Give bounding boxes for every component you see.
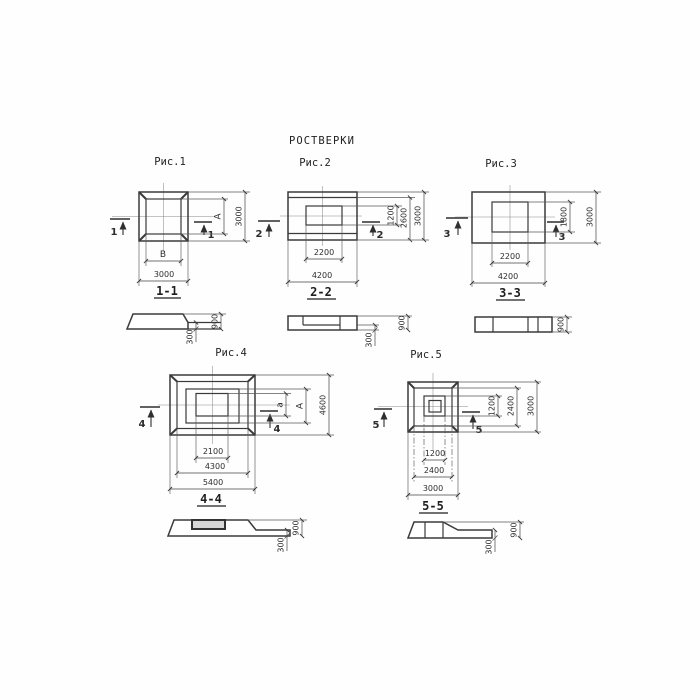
fig5-dim-right-2400: 2400	[507, 396, 516, 416]
figure-3-caption: Рис.3	[485, 158, 517, 170]
cut-mark-3-right: 3	[559, 232, 566, 243]
sec2-dim-300: 300	[365, 332, 374, 347]
fig4-dim-4300: 4300	[205, 462, 225, 471]
fig1-dim-width: 3000	[154, 270, 174, 279]
cut-mark-4-right: 4	[274, 424, 281, 435]
fig1-dim-B: В	[160, 250, 166, 260]
figure-5-caption: Рис.5	[410, 349, 442, 361]
section-4-4-recess	[192, 520, 225, 529]
figure-2-plan	[280, 186, 362, 246]
fig2-dim-3000: 3000	[414, 206, 423, 226]
drawing-canvas: РОСТВЕРКИ Рис.1 1 1 А	[0, 0, 700, 700]
fig2-dim-1200: 1200	[387, 205, 396, 225]
section-view-1-1: 300 900	[127, 314, 226, 345]
fig2-dim-2200: 2200	[314, 248, 334, 257]
fig1-dim-A: А	[214, 213, 224, 220]
fig4-dim-5400: 5400	[203, 478, 223, 487]
sec4-dim-300: 300	[277, 537, 286, 552]
fig2-dim-2600: 2600	[400, 208, 409, 228]
drawing-sheet: РОСТВЕРКИ Рис.1 1 1 А	[0, 0, 700, 700]
fig3-dim-1800: 1800	[560, 207, 569, 227]
section-view-3-3: 900	[475, 317, 572, 332]
fig4-dim-A: А	[296, 402, 306, 409]
cut-mark-2-right: 2	[377, 230, 384, 241]
sec5-dim-900: 900	[510, 522, 519, 537]
cut-mark-1-left: 1	[111, 227, 118, 238]
figure-5-plan	[378, 373, 468, 450]
cut-mark-1-right: 1	[208, 230, 215, 241]
cut-mark-3-left: 3	[444, 229, 451, 240]
figure-4-cut-marks: 4 4	[139, 407, 281, 435]
figure-2-section-label: 2-2	[310, 285, 332, 299]
fig3-dim-4200: 4200	[498, 272, 518, 281]
figure-2: Рис.2 2 2 1200 2600	[256, 157, 429, 299]
sec1-dim-900: 900	[211, 314, 220, 329]
fig4-dim-4600: 4600	[319, 395, 328, 415]
fig1-dim-height: 3000	[235, 206, 244, 226]
figure-4-plan	[158, 366, 290, 444]
fig5-dim-right-1200: 1200	[488, 396, 497, 416]
fig5-dim-bottom-1200: 1200	[425, 449, 445, 458]
figure-5: Рис.5 5 5 1200	[373, 349, 541, 513]
figure-4-caption: Рис.4	[215, 347, 247, 359]
sec5-dim-300: 300	[485, 539, 494, 554]
sec4-dim-900: 900	[292, 520, 301, 535]
cut-mark-4-left: 4	[139, 419, 146, 430]
figure-1-cut-marks: 1 1	[110, 219, 215, 241]
figure-4-section-label: 4-4	[200, 492, 222, 506]
fig5-dim-bottom-2400: 2400	[424, 466, 444, 475]
section-5-5-shape	[408, 522, 492, 538]
section-view-5-5: 900 300	[408, 522, 524, 555]
figure-2-caption: Рис.2	[299, 157, 331, 169]
sec1-dim-300: 300	[186, 329, 195, 344]
fig2-dim-4200: 4200	[312, 271, 332, 280]
figure-3-section-label: 3-3	[499, 286, 521, 300]
figure-5-dimensions: 1200 2400 3000 1200 2400 3000	[408, 382, 541, 500]
figure-1-caption: Рис.1	[154, 156, 186, 168]
sec3-dim-900: 900	[557, 317, 566, 332]
figure-3-plan	[455, 185, 555, 250]
figure-2-cut-marks: 2 2	[256, 221, 384, 241]
figure-3-cut-marks: 3 3	[444, 218, 566, 243]
cut-mark-5-right: 5	[476, 425, 483, 436]
fig3-dim-2200: 2200	[500, 252, 520, 261]
figure-1-section-label: 1-1	[156, 284, 178, 298]
figure-3: Рис.3 3 3 1800 3000 2200	[444, 158, 601, 300]
fig5-dim-right-3000: 3000	[527, 396, 536, 416]
sec2-dim-900: 900	[398, 315, 407, 330]
figure-3-dimensions: 1800 3000 2200 4200	[472, 192, 601, 287]
cut-mark-5-left: 5	[373, 420, 380, 431]
fig3-dim-3000: 3000	[586, 207, 595, 227]
cut-mark-2-left: 2	[256, 229, 263, 240]
section-view-2-2: 300 900	[288, 315, 412, 347]
fig4-dim-2100: 2100	[203, 447, 223, 456]
section-4-4-shape	[168, 520, 290, 536]
section-3-3-shape	[475, 317, 552, 332]
fig4-dim-a-small: а	[276, 402, 286, 408]
figure-4: Рис.4 4 4 а	[139, 347, 334, 506]
section-view-4-4: 900 300	[168, 520, 307, 553]
figure-1-dimensions: А 3000 В 3000	[139, 192, 250, 286]
sheet-title: РОСТВЕРКИ	[289, 135, 355, 147]
section-1-1-shape	[127, 314, 188, 329]
fig5-dim-bottom-3000: 3000	[423, 484, 443, 493]
section-2-2-shape	[288, 316, 357, 330]
figure-5-section-label: 5-5	[422, 499, 444, 513]
figure-1: Рис.1 1 1 А 3000	[110, 156, 250, 298]
